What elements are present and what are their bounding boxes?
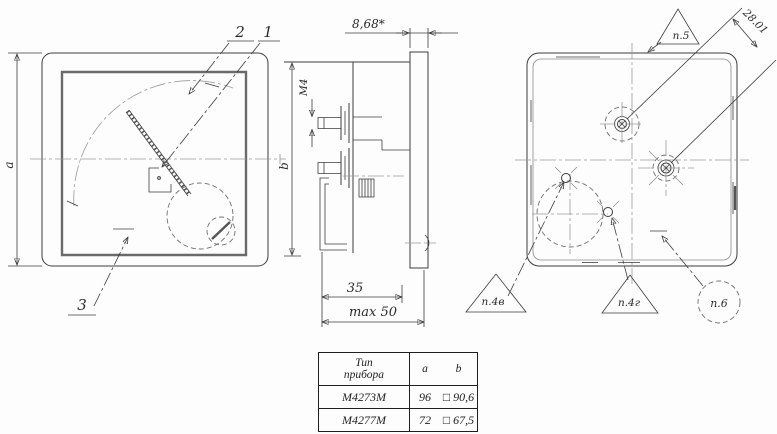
front-view: a 2 1 3 <box>2 23 286 315</box>
callout-2: 2 <box>234 23 245 41</box>
table-row: М4273М 96 □ 90,6 <box>319 386 478 409</box>
header-type-cell: Тип прибора <box>319 353 410 386</box>
dim-a-label: a <box>2 161 16 168</box>
type-table: Тип прибора a b М4273М 96 □ 90,6 М4277М … <box>318 352 478 432</box>
a-value-cell: 72 <box>410 409 441 432</box>
rear-view: 28.01 п.5 п.4в п.4г п.6 <box>466 6 776 323</box>
flag-p5: п.5 <box>648 9 699 52</box>
a-value-cell: 96 <box>410 386 441 409</box>
callout-1: 1 <box>263 23 273 41</box>
pointer-needle <box>126 110 191 196</box>
lower-mounting-stud <box>318 148 349 188</box>
magnet-system-circle <box>532 174 608 254</box>
dim-b-label: b <box>277 162 291 170</box>
b-value-cell: □ 90,6 <box>440 386 478 409</box>
rear-outer-frame <box>527 53 737 266</box>
dim-35-label: 35 <box>347 281 364 296</box>
header-type-line2: прибора <box>344 369 384 381</box>
front-callouts: 2 1 3 <box>68 23 280 315</box>
flag-p4g-label: п.4г <box>618 297 641 309</box>
b-value-cell: □ 67,5 <box>440 409 478 432</box>
dim-depth-label: 8,68* <box>352 17 385 31</box>
header-b-cell: b <box>440 353 478 386</box>
flag-p4v-label: п.4в <box>482 296 505 308</box>
dimension-max50: max 50 <box>322 270 424 327</box>
front-outer-frame <box>42 53 268 266</box>
side-view: 8,68* M4 b 35 max 50 <box>277 17 458 327</box>
terminal-thread <box>343 176 404 197</box>
dim-max50-label: max 50 <box>349 305 397 320</box>
header-a-cell: a <box>410 353 441 386</box>
dimension-thread-m4: M4 <box>298 79 312 147</box>
terminal-boss-right <box>597 201 619 223</box>
dimension-diagonal: 28.01 <box>627 6 776 163</box>
flag-p6: п.6 <box>650 231 740 323</box>
front-window <box>62 72 246 255</box>
terminal-boss-top <box>555 167 577 189</box>
flag-p6-label: п.6 <box>710 297 728 310</box>
thread-label: M4 <box>298 79 310 97</box>
table-header-row: Тип прибора a b <box>319 353 478 386</box>
dimension-a: a <box>2 53 42 266</box>
dial-center-mark <box>149 168 171 192</box>
callout-3: 3 <box>77 296 87 314</box>
zero-corrector-screw <box>207 217 235 245</box>
dimension-depth: 8,68* <box>345 17 458 48</box>
type-cell: М4273М <box>319 386 410 409</box>
type-cell: М4277М <box>319 409 410 432</box>
flag-p5-label: п.5 <box>673 30 690 42</box>
header-type-line1: Тип <box>355 357 373 369</box>
mounting-bracket <box>320 178 347 250</box>
dimension-35: 35 <box>322 252 402 303</box>
flag-p4v: п.4в <box>466 182 564 312</box>
upper-mounting-stud <box>318 103 349 143</box>
panel-meter-drawing-sheet: a 2 1 3 <box>0 0 777 434</box>
table-row: М4277М 72 □ 67,5 <box>319 409 478 432</box>
mechanism-circle <box>167 183 233 249</box>
